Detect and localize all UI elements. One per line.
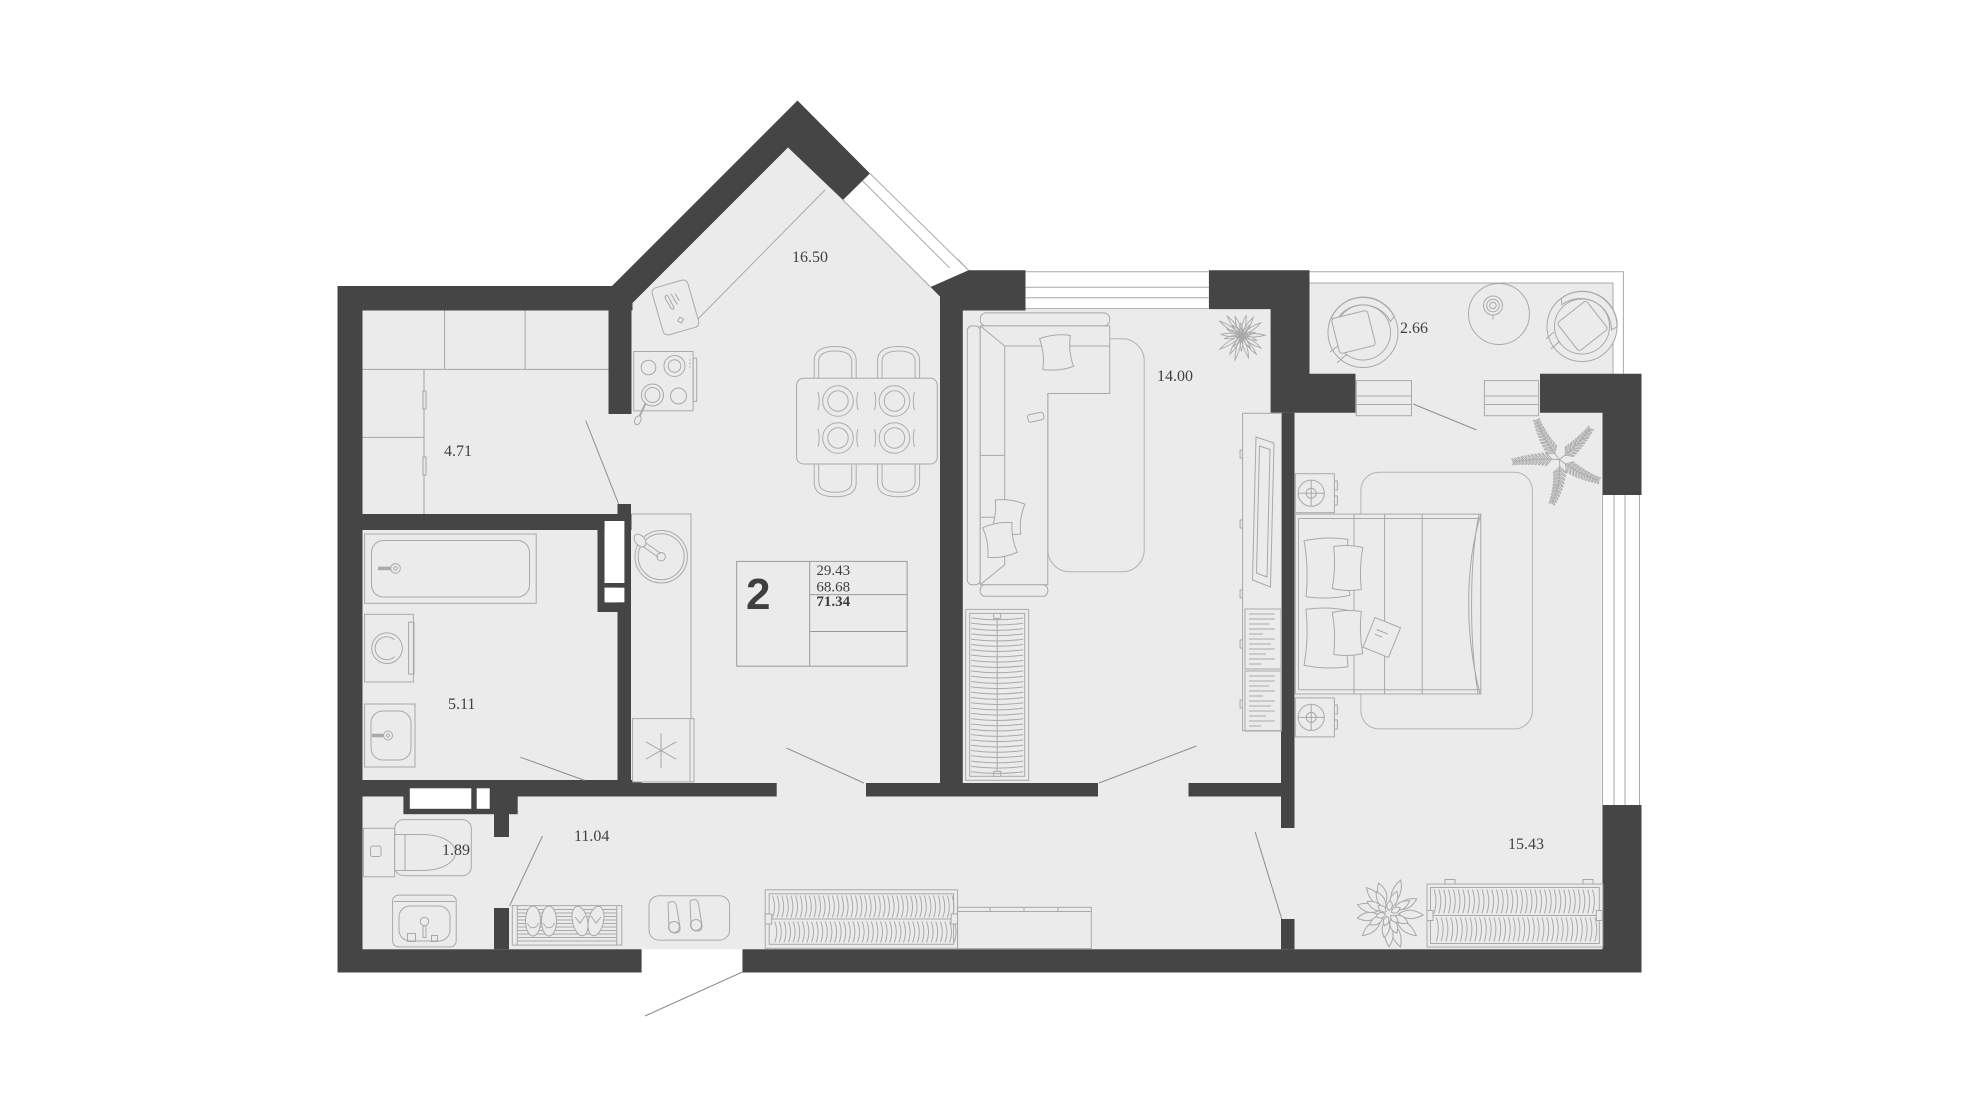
- svg-text:71.34: 71.34: [816, 594, 850, 610]
- svg-text:1.89: 1.89: [442, 842, 470, 859]
- svg-text:16.50: 16.50: [792, 249, 828, 266]
- svg-text:2.66: 2.66: [1400, 320, 1428, 337]
- svg-text:14.00: 14.00: [1157, 368, 1193, 385]
- svg-text:2: 2: [746, 570, 770, 619]
- svg-text:5.11: 5.11: [448, 696, 475, 713]
- svg-text:11.04: 11.04: [574, 828, 609, 845]
- svg-text:15.43: 15.43: [1508, 836, 1544, 853]
- svg-text:4.71: 4.71: [444, 443, 472, 460]
- svg-text:29.43: 29.43: [816, 563, 850, 579]
